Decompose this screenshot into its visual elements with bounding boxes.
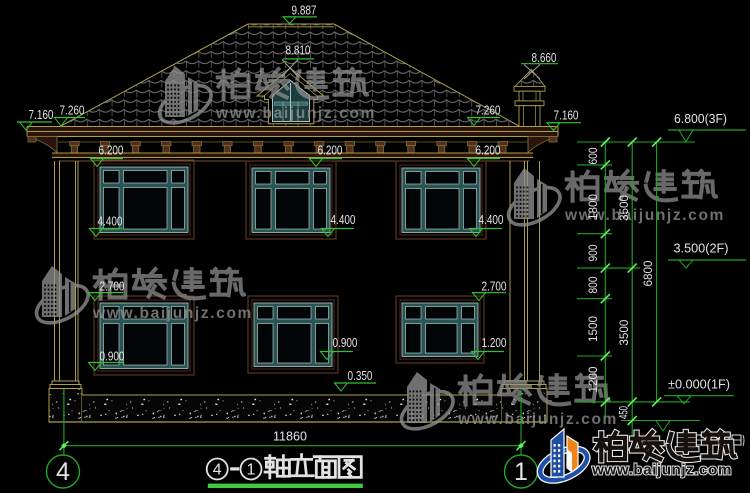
svg-text:6.200: 6.200 [318,143,343,158]
svg-text:1500: 1500 [588,316,600,342]
svg-text:0.900: 0.900 [100,349,125,364]
svg-text:2.700: 2.700 [100,279,125,294]
svg-text:4.400: 4.400 [331,212,356,227]
svg-text:www.baijunjz.com: www.baijunjz.com [591,462,732,479]
svg-text:0.900: 0.900 [333,335,358,350]
svg-text:900: 900 [588,245,600,262]
svg-text:1800: 1800 [588,194,600,220]
svg-text:800: 800 [588,277,600,294]
svg-text:2.700: 2.700 [482,279,507,294]
svg-text:7.260: 7.260 [60,103,85,118]
svg-text:450: 450 [619,406,631,419]
svg-text:8.660: 8.660 [532,50,557,65]
svg-text:4.400: 4.400 [98,214,123,229]
svg-text:600: 600 [588,148,600,165]
svg-text:1: 1 [514,458,528,486]
svg-text:4.400: 4.400 [479,212,504,227]
svg-text:±0.000(1F): ±0.000(1F) [668,377,730,392]
svg-text:4: 4 [213,462,222,479]
svg-text:11860: 11860 [273,429,307,444]
svg-text:6.800(3F): 6.800(3F) [674,111,727,126]
svg-text:3500: 3500 [619,195,631,221]
svg-text:0.350: 0.350 [348,368,373,383]
svg-text:6800: 6800 [643,261,655,287]
svg-text:www.baijunjz.com: www.baijunjz.com [92,305,253,322]
svg-text:1200: 1200 [588,367,600,393]
svg-text:6.200: 6.200 [99,143,124,158]
svg-text:3.500(2F): 3.500(2F) [674,241,729,256]
svg-text:7.160: 7.160 [29,107,54,122]
svg-text:3500: 3500 [619,320,631,346]
svg-text:7.160: 7.160 [554,108,579,123]
svg-text:9.887: 9.887 [292,3,317,18]
svg-text:1: 1 [247,462,256,479]
svg-text:6.200: 6.200 [476,143,501,158]
svg-text:www.baijunjz.com: www.baijunjz.com [215,105,376,122]
svg-text:4: 4 [56,458,70,486]
svg-text:8.810: 8.810 [286,43,311,58]
svg-text:www.baijunjz.com: www.baijunjz.com [457,411,618,428]
svg-text:7.260: 7.260 [476,103,501,118]
svg-text:1.200: 1.200 [482,335,507,350]
